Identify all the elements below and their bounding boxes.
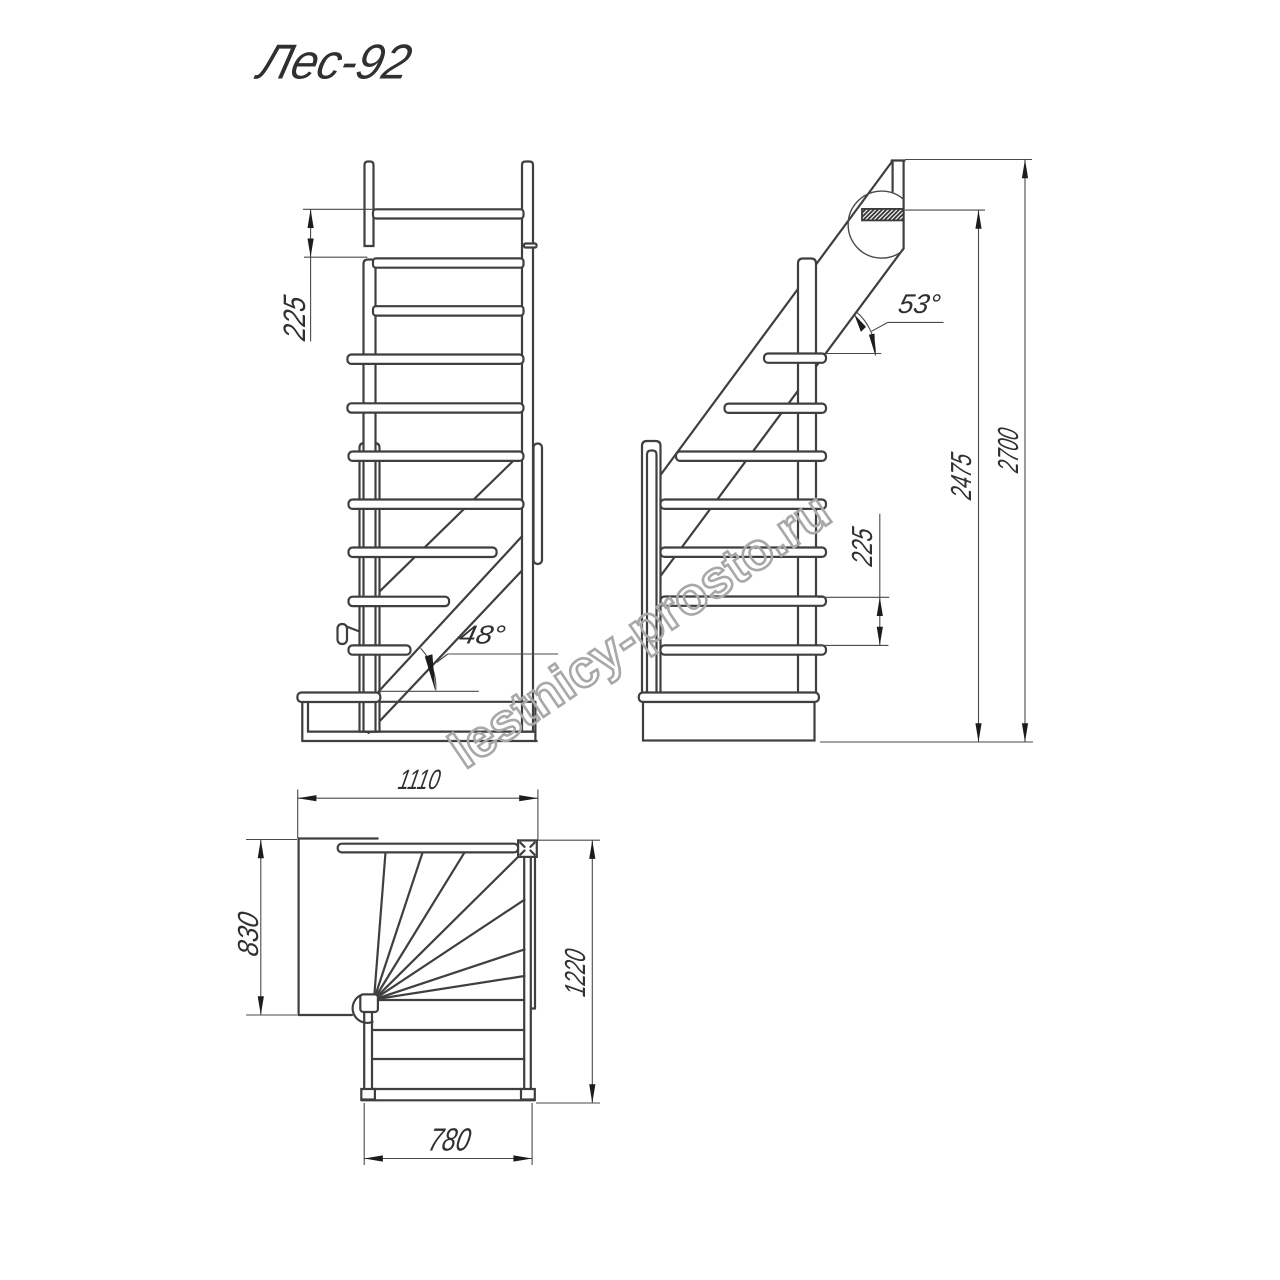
svg-text:2475: 2475 bbox=[945, 450, 978, 503]
svg-text:53°: 53° bbox=[896, 288, 944, 319]
svg-text:Лес-92: Лес-92 bbox=[250, 34, 417, 89]
svg-text:2700: 2700 bbox=[992, 425, 1025, 476]
svg-text:225: 225 bbox=[846, 524, 879, 569]
svg-text:225: 225 bbox=[277, 292, 312, 344]
svg-text:1110: 1110 bbox=[396, 763, 444, 795]
svg-text:830: 830 bbox=[232, 908, 265, 959]
svg-text:1220: 1220 bbox=[559, 946, 592, 999]
svg-text:780: 780 bbox=[426, 1122, 475, 1158]
svg-text:48°: 48° bbox=[457, 620, 508, 650]
